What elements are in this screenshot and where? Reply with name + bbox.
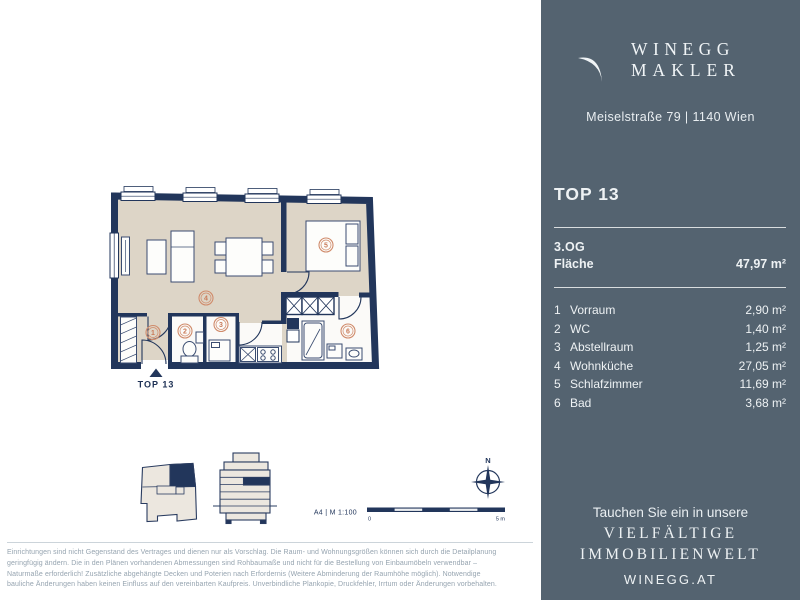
room-area: 11,69 m² [740,377,786,391]
room-number: 2 [554,322,570,336]
disclaimer-divider [7,542,533,543]
disclaimer-line: geringfügig ändern. Die in den Plänen vo… [7,559,535,570]
scale-max-label: 5 m [496,517,506,523]
room-row: 3Abstellraum1,25 m² [554,340,786,359]
disclaimer-line: bauliche Änderungen haben keinen Einflus… [7,580,535,591]
window-2 [183,188,217,202]
washing-machine [209,340,230,361]
room-area: 1,40 m² [745,322,786,336]
compass-north-label: N [485,456,490,465]
duct-column [287,318,299,342]
bath-sink [346,348,362,360]
window-1 [121,187,155,201]
room-name: Vorraum [570,303,615,317]
svg-text:4: 4 [204,296,208,303]
area-value: 47,97 m² [736,257,786,271]
room-number: 4 [554,359,570,373]
marker-3: 3 [214,318,228,332]
key-plan-footprint [141,464,197,522]
room-number: 5 [554,377,570,391]
room-name: Schlafzimmer [570,377,643,391]
window-4 [307,190,341,204]
room-number: 3 [554,340,570,354]
compass: N [471,456,505,499]
room-name: WC [570,322,590,336]
floor-plan-drawing: 1 2 3 4 5 6 TOP 13 [0,0,541,600]
room-row: 1Vorraum2,90 m² [554,303,786,322]
marker-1: 1 [146,326,160,340]
radiator [122,237,130,275]
entry-opening [141,360,168,370]
info-panel: WINEGG MAKLER Meiselstraße 79 | 1140 Wie… [541,0,800,600]
brand-name-line1: WINEGG [631,39,741,60]
marker-4: 4 [199,291,213,305]
marker-6: 6 [341,324,355,338]
room-area: 3,68 m² [745,396,786,410]
tagline-intro: Tauchen Sie ein in unsere [541,505,800,520]
disclaimer-line: Naturmaße erforderlich! Zusätzliche abge… [7,570,535,581]
room-row: 2WC1,40 m² [554,322,786,341]
floor-plan-area: 1 2 3 4 5 6 TOP 13 [0,0,541,600]
tagline-headline-2: IMMOBILIENWELT [541,546,800,564]
svg-text:3: 3 [219,322,223,329]
disclaimer-line: Einrichtungen sind nicht Gegenstand des … [7,548,535,559]
window-3 [245,189,279,203]
unit-title: TOP 13 [554,184,620,205]
svg-text:2: 2 [183,329,187,336]
scale-bar: A4 | M 1:100 0 5 m [314,508,506,523]
expose-sheet: 1 2 3 4 5 6 TOP 13 [0,0,800,600]
area-label: Fläche [554,257,594,271]
room-row: 4Wohnküche27,05 m² [554,359,786,378]
room-area: 27,05 m² [739,359,786,373]
compass-star-icon [471,465,505,499]
svg-text:1: 1 [151,330,155,337]
room-area: 2,90 m² [745,303,786,317]
room-area: 1,25 m² [745,340,786,354]
scale-zero-label: 0 [368,517,371,523]
svg-text:6: 6 [346,329,350,336]
room-name: Abstellraum [570,340,633,354]
room-name: Bad [570,396,591,410]
kitchen-counter [239,346,282,363]
svg-text:5: 5 [324,243,328,250]
room-row: 6Bad3,68 m² [554,396,786,415]
key-plan-highlight [170,464,196,488]
wardrobe [121,317,137,363]
marker-2: 2 [178,324,192,338]
brand-star-icon [577,32,627,84]
brand-name-line2: MAKLER [631,60,741,81]
room-name: Wohnküche [570,359,633,373]
unit-area-row: Fläche 47,97 m² [554,257,786,271]
window-left [110,233,119,278]
divider-line [554,227,786,228]
disclaimer: Einrichtungen sind nicht Gegenstand des … [7,548,535,591]
room-number: 1 [554,303,570,317]
room-row: 5Schlafzimmer11,69 m² [554,377,786,396]
wc-sink [196,332,204,343]
key-section-highlight [244,478,270,486]
key-section-elevation [213,453,277,524]
entrance-label: TOP 13 [138,380,175,390]
room-list: 1Vorraum2,90 m² 2WC1,40 m² 3Abstellraum1… [554,303,786,415]
property-address: Meiselstraße 79 | 1140 Wien [541,110,800,124]
unit-floor: 3.OG [554,240,585,254]
divider-line [554,287,786,288]
website-link[interactable]: WINEGG.AT [541,572,800,587]
entrance-marker: TOP 13 [138,369,175,390]
brand-logo: WINEGG MAKLER [631,39,741,81]
shaft-boxes [286,297,334,315]
marker-5: 5 [319,238,333,252]
bathtub [302,321,324,360]
scale-caption: A4 | M 1:100 [314,510,357,517]
bath-washer [327,344,342,358]
tagline-headline-1: VIELFÄLTIGE [541,525,800,543]
room-number: 6 [554,396,570,410]
